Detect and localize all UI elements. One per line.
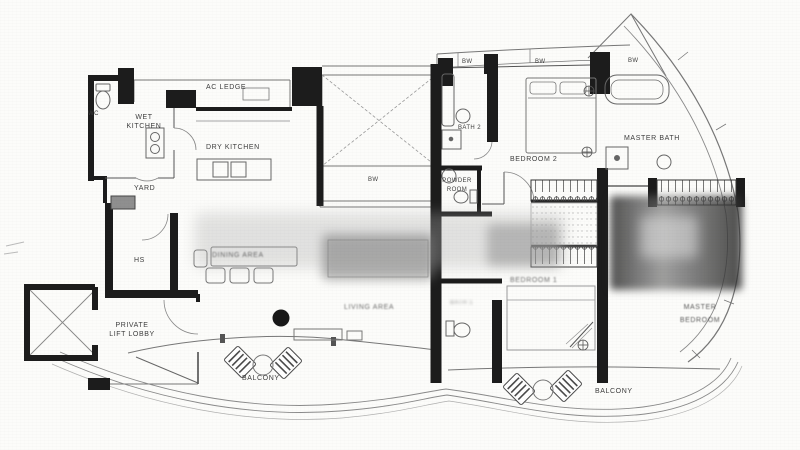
label-yard: YARD bbox=[134, 184, 155, 193]
label-bedroom-1: BEDROOM 1 bbox=[510, 276, 557, 285]
lift-shaft bbox=[30, 290, 95, 355]
floorplan-canvas: AC LEDGE WC WET KITCHEN DRY KITCHEN YARD… bbox=[0, 0, 800, 450]
label-ac-ledge: AC LEDGE bbox=[206, 83, 246, 92]
walls bbox=[27, 52, 745, 390]
bedroom2-furniture bbox=[526, 78, 596, 157]
label-private-lift-lobby: PRIVATE LIFT LOBBY bbox=[103, 321, 161, 339]
label-living-area: LIVING AREA bbox=[344, 303, 394, 312]
label-master-bedroom: MASTER BEDROOM bbox=[668, 301, 732, 327]
label-balcony-left: BALCONY bbox=[242, 374, 280, 383]
label-dining-area: DINING AREA bbox=[212, 251, 264, 260]
label-balcony-right: BALCONY bbox=[595, 387, 633, 396]
column bbox=[273, 310, 290, 327]
label-wc: WC bbox=[88, 110, 99, 119]
label-dry-kitchen: DRY KITCHEN bbox=[206, 143, 260, 152]
label-bath-1: BATH 1 bbox=[450, 299, 473, 308]
label-bw-center: BW bbox=[368, 176, 378, 185]
floorplan-linework bbox=[0, 0, 800, 450]
living-furniture bbox=[273, 240, 429, 340]
label-bedroom-2: BEDROOM 2 bbox=[510, 155, 557, 164]
label-master-bath: MASTER BATH bbox=[624, 134, 680, 143]
balcony-structure bbox=[52, 334, 742, 422]
ac-shaft bbox=[320, 66, 436, 207]
label-bath-2: BATH 2 bbox=[458, 124, 481, 133]
label-hs: HS bbox=[134, 256, 145, 265]
label-bw-2: BW bbox=[535, 58, 545, 67]
label-bw-3: BW bbox=[628, 57, 638, 66]
label-wet-kitchen: WET KITCHEN bbox=[118, 113, 170, 131]
label-bw-1: BW bbox=[462, 58, 472, 67]
wardrobes bbox=[531, 180, 736, 267]
label-powder-room: POWDER ROOM bbox=[436, 177, 478, 195]
bedroom1-furniture bbox=[507, 286, 595, 350]
